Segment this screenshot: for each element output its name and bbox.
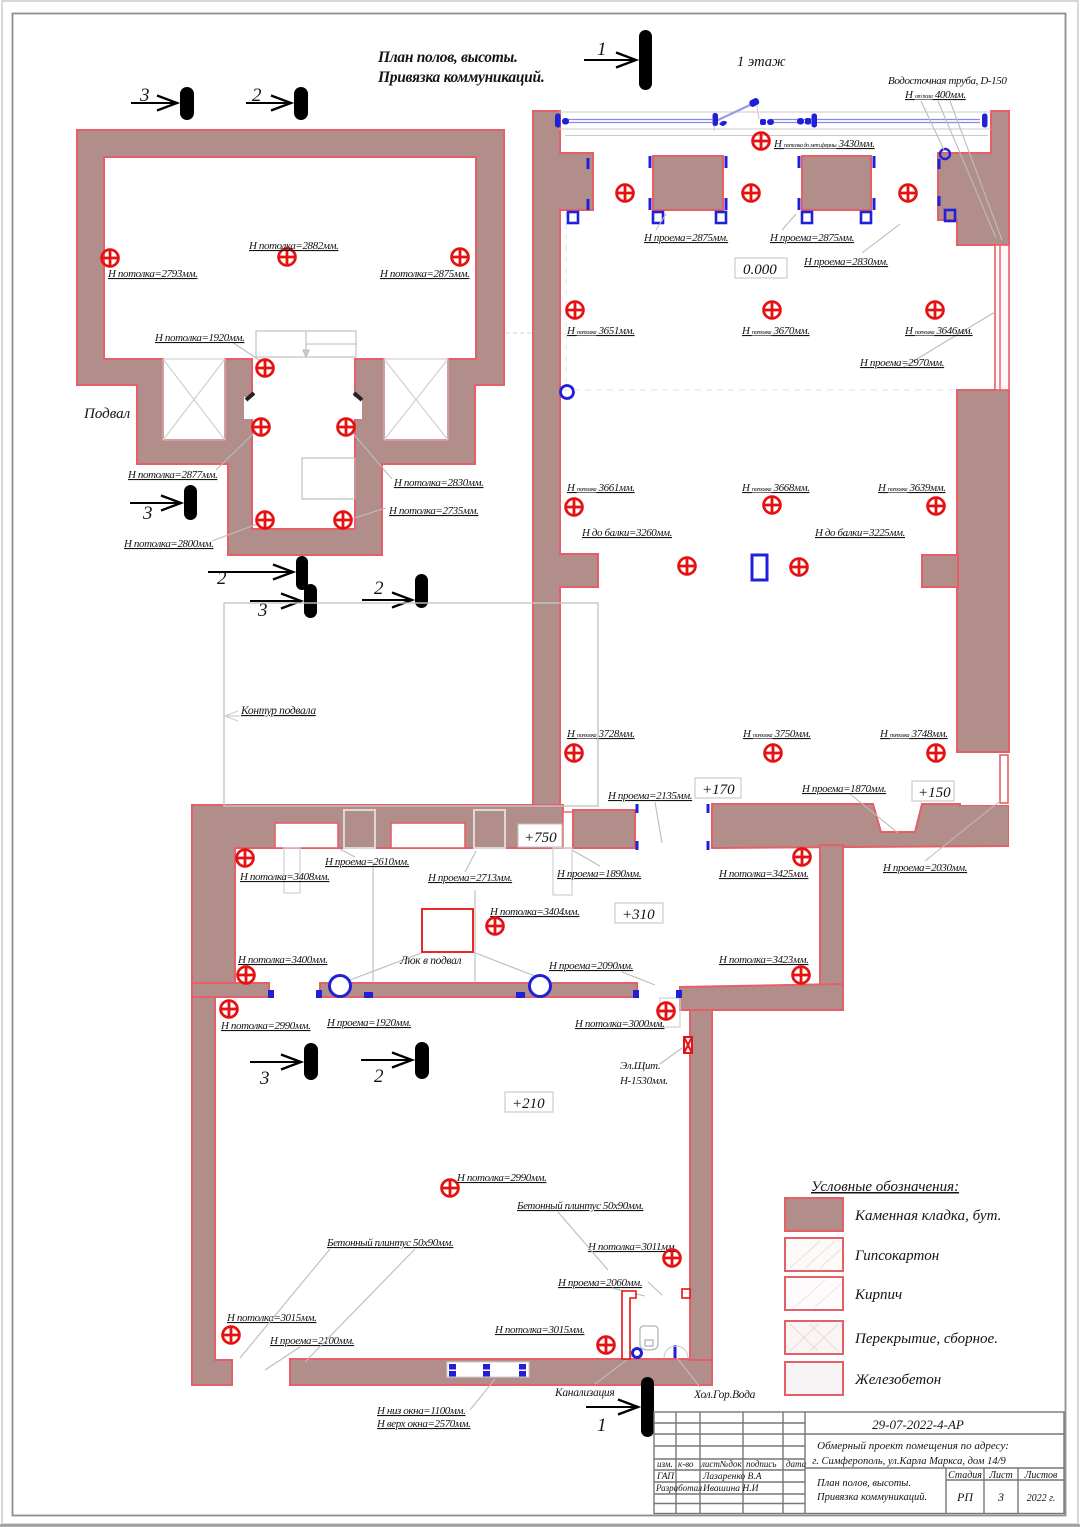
svg-text:1: 1 <box>597 39 607 60</box>
svg-text:Н до балки=3260мм.: Н до балки=3260мм. <box>581 527 672 539</box>
svg-text:+750: +750 <box>524 830 557 846</box>
svg-text:Н проема=2830мм.: Н проема=2830мм. <box>803 256 888 268</box>
svg-text:Эл.Щит.: Эл.Щит. <box>620 1060 660 1072</box>
svg-text:Н потолка 3646мм.: Н потолка 3646мм. <box>904 325 973 337</box>
svg-text:Листов: Листов <box>1024 1470 1058 1481</box>
svg-text:Разработал: Разработал <box>655 1483 702 1493</box>
svg-text:1: 1 <box>597 1415 607 1436</box>
svg-text:Н проема=2970мм.: Н проема=2970мм. <box>859 357 944 369</box>
svg-text:Перекрытие, сборное.: Перекрытие, сборное. <box>854 1331 998 1347</box>
svg-text:Канализация: Канализация <box>554 1387 614 1399</box>
svg-text:Обмерный проект помещения по а: Обмерный проект помещения по адресу: <box>817 1440 1009 1452</box>
svg-text:изм.: изм. <box>657 1459 673 1469</box>
svg-text:Н проема=2713мм.: Н проема=2713мм. <box>427 872 512 884</box>
svg-text:Н потолка=3015мм.: Н потолка=3015мм. <box>226 1312 316 1324</box>
svg-text:Н верх окна=2570мм.: Н верх окна=2570мм. <box>376 1418 470 1430</box>
svg-text:1 этаж: 1 этаж <box>737 54 786 70</box>
svg-text:Подвал: Подвал <box>83 406 131 422</box>
svg-text:+170: +170 <box>702 782 735 798</box>
svg-text:Н потолка=2877мм.: Н потолка=2877мм. <box>127 469 217 481</box>
svg-text:Н потолка 3651мм.: Н потолка 3651мм. <box>566 325 635 337</box>
svg-text:Н потолка 3750мм.: Н потолка 3750мм. <box>742 728 811 740</box>
svg-text:Н проема=1920мм.: Н проема=1920мм. <box>326 1017 411 1029</box>
svg-text:Бетонный плинтус 50х90мм.: Бетонный плинтус 50х90мм. <box>326 1237 453 1249</box>
svg-text:Н потолка 3728мм.: Н потолка 3728мм. <box>566 728 635 740</box>
svg-text:Н потолка=3400мм.: Н потолка=3400мм. <box>237 954 327 966</box>
svg-text:Н потолка 3639мм.: Н потолка 3639мм. <box>877 482 946 494</box>
svg-text:+310: +310 <box>622 907 655 923</box>
svg-text:Н потолка=2800мм.: Н потолка=2800мм. <box>123 538 213 550</box>
svg-text:Н потолка=3011мм.: Н потолка=3011мм. <box>587 1241 677 1253</box>
svg-text:Н потолка=3000мм.: Н потолка=3000мм. <box>574 1018 664 1030</box>
svg-text:лист№док: лист№док <box>700 1459 742 1469</box>
svg-text:Н проема=2060мм.: Н проема=2060мм. <box>557 1277 642 1289</box>
svg-text:2: 2 <box>374 1066 384 1087</box>
svg-text:Кирпич: Кирпич <box>854 1287 902 1303</box>
svg-text:Н проема=2135мм.: Н проема=2135мм. <box>607 790 692 802</box>
svg-text:Н потолка=3408мм.: Н потолка=3408мм. <box>239 871 329 883</box>
svg-text:г. Симферополь, ул.Карла Маркс: г. Симферополь, ул.Карла Маркса, дом 14/… <box>812 1456 1006 1467</box>
svg-text:Н потолка=2793мм.: Н потолка=2793мм. <box>107 268 197 280</box>
svg-text:Н проема=2875мм.: Н проема=2875мм. <box>769 232 854 244</box>
svg-text:ГАП: ГАП <box>656 1472 675 1482</box>
svg-text:3: 3 <box>259 1068 270 1089</box>
svg-text:Н потолка=3404мм.: Н потолка=3404мм. <box>489 906 579 918</box>
svg-text:2022 г.: 2022 г. <box>1027 1493 1056 1504</box>
svg-text:Н потолка=2990мм.: Н потолка=2990мм. <box>220 1020 310 1032</box>
svg-text:+150: +150 <box>918 785 951 801</box>
svg-text:Н потолка 3661мм.: Н потолка 3661мм. <box>566 482 635 494</box>
svg-text:Н проема=2090мм.: Н проема=2090мм. <box>548 960 633 972</box>
svg-text:Каменная кладка, бут.: Каменная кладка, бут. <box>854 1208 1001 1224</box>
svg-text:Н потолка=2830мм.: Н потолка=2830мм. <box>393 477 483 489</box>
svg-text:Водосточная труба, D-150: Водосточная труба, D-150 <box>888 75 1007 87</box>
svg-text:дата: дата <box>786 1459 807 1469</box>
svg-text:Н потолка=2990мм.: Н потолка=2990мм. <box>456 1172 546 1184</box>
svg-text:Стадия: Стадия <box>948 1470 982 1481</box>
svg-text:Гипсокартон: Гипсокартон <box>854 1248 939 1264</box>
svg-text:Н проема=2100мм.: Н проема=2100мм. <box>269 1335 354 1347</box>
svg-text:2: 2 <box>252 85 262 106</box>
svg-text:Н потолка=3425мм.: Н потолка=3425мм. <box>718 868 808 880</box>
svg-text:Н потолка=3423мм.: Н потолка=3423мм. <box>718 954 808 966</box>
svg-text:Н потолка=2735мм.: Н потолка=2735мм. <box>388 505 478 517</box>
svg-text:Контур подвала: Контур подвала <box>240 705 316 717</box>
svg-text:Н низ окна=1100мм.: Н низ окна=1100мм. <box>376 1405 466 1417</box>
svg-text:к-во: к-во <box>678 1459 694 1469</box>
svg-text:План полов, высоты.: План полов, высоты. <box>816 1478 911 1489</box>
svg-text:Н потолка=3015мм.: Н потолка=3015мм. <box>494 1324 584 1336</box>
svg-text:Условные обозначения:: Условные обозначения: <box>811 1179 959 1195</box>
svg-text:План полов, высоты.: План полов, высоты. <box>377 49 518 66</box>
svg-text:Н потолка=1920мм.: Н потолка=1920мм. <box>154 332 244 344</box>
svg-text:Бетонный плинтус 50х90мм.: Бетонный плинтус 50х90мм. <box>516 1200 643 1212</box>
svg-text:Н от пола 400мм.: Н от пола 400мм. <box>904 89 966 101</box>
svg-text:0.000: 0.000 <box>743 262 777 278</box>
svg-text:Железобетон: Железобетон <box>854 1372 941 1388</box>
svg-text:Привязка коммуникаций.: Привязка коммуникаций. <box>377 69 544 86</box>
svg-text:3: 3 <box>997 1490 1004 1504</box>
svg-text:Ивашина Н.И: Ивашина Н.И <box>702 1484 760 1494</box>
svg-text:Н потолка 3748мм.: Н потолка 3748мм. <box>879 728 948 740</box>
svg-text:Привязка коммуникаций.: Привязка коммуникаций. <box>816 1492 927 1503</box>
svg-text:+210: +210 <box>512 1096 545 1112</box>
svg-text:Н проема=1890мм.: Н проема=1890мм. <box>556 868 641 880</box>
svg-text:Н до балки=3225мм.: Н до балки=3225мм. <box>814 527 905 539</box>
svg-text:Н-1530мм.: Н-1530мм. <box>619 1075 668 1087</box>
svg-text:Н проема=2875мм.: Н проема=2875мм. <box>643 232 728 244</box>
svg-text:2: 2 <box>374 578 384 599</box>
svg-text:3: 3 <box>142 503 153 524</box>
svg-text:Н проема=2030мм.: Н проема=2030мм. <box>882 862 967 874</box>
svg-text:Люк в подвал: Люк в подвал <box>399 955 462 967</box>
svg-text:Н потолка=2875мм.: Н потолка=2875мм. <box>379 268 469 280</box>
svg-text:Н потолка 3670мм.: Н потолка 3670мм. <box>741 325 810 337</box>
svg-text:Лист: Лист <box>988 1470 1012 1481</box>
svg-text:29-07-2022-4-АР: 29-07-2022-4-АР <box>872 1417 964 1432</box>
svg-text:Лазаренко В.А: Лазаренко В.А <box>702 1472 762 1482</box>
svg-text:2: 2 <box>217 568 227 589</box>
svg-text:Н потолка 3668мм.: Н потолка 3668мм. <box>741 482 810 494</box>
svg-text:3: 3 <box>139 85 150 106</box>
svg-text:Н потолка=2882мм.: Н потолка=2882мм. <box>248 240 338 252</box>
svg-text:РП: РП <box>956 1490 974 1504</box>
svg-text:подпись: подпись <box>746 1459 777 1469</box>
svg-text:Н проема=2610мм.: Н проема=2610мм. <box>324 856 409 868</box>
svg-text:Хол.Гор.Вода: Хол.Гор.Вода <box>693 1389 756 1401</box>
svg-text:Н проема=1870мм.: Н проема=1870мм. <box>801 783 886 795</box>
